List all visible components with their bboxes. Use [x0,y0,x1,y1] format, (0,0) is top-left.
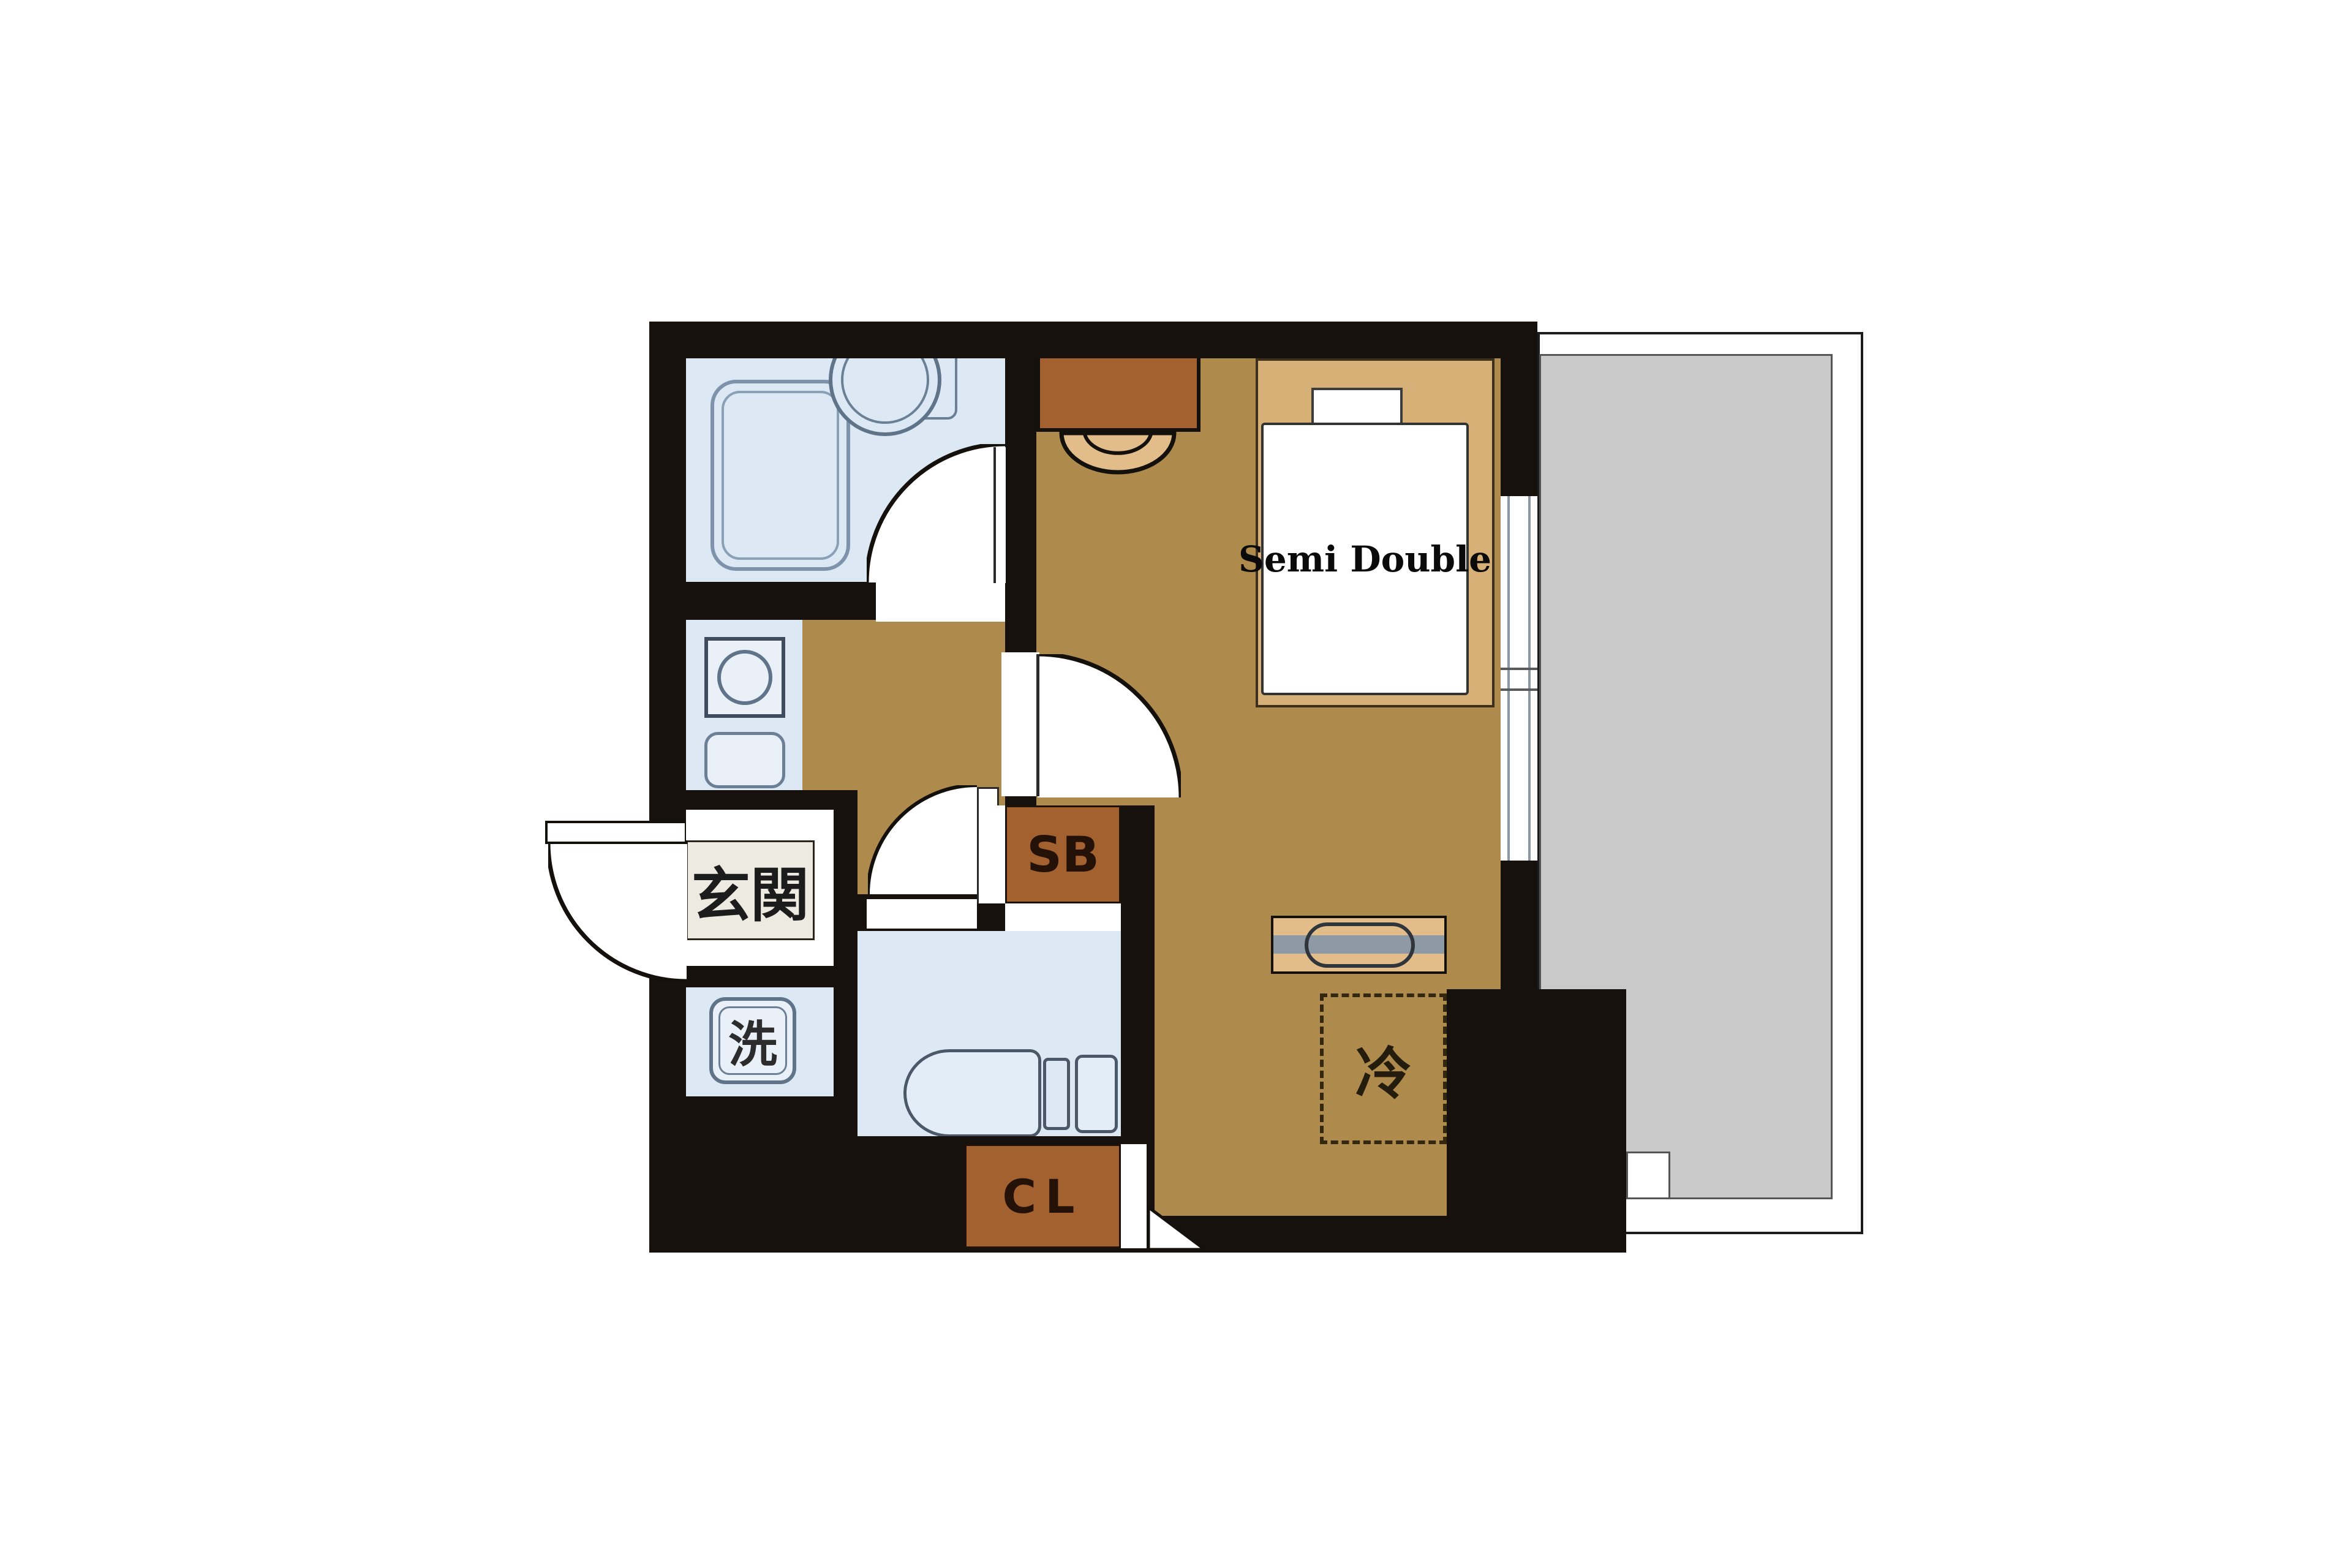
entrance-threshold-bottom [686,940,815,966]
closet: CL [965,1144,1121,1248]
toilet-seat [1043,1058,1070,1130]
closet-door-mark [1147,1205,1208,1252]
wall-entrance-laundry [686,966,834,987]
entrance-door-swing [548,843,687,981]
bed-size-label: Semi Double [1238,538,1491,580]
chair [1057,431,1179,478]
room-door-opening [1001,652,1039,796]
closet-gap-right [1121,1144,1147,1248]
wall-top [649,322,1537,358]
refrigerator-label: 冷 [1355,1028,1411,1110]
floorplan: Semi Double 冷 洗 [0,0,2352,1568]
window-meeting-rail-a [1501,668,1537,670]
window-opening [1501,496,1537,861]
bathroom-door-threshold [876,579,1005,622]
shoe-box-label: SB [1027,826,1099,883]
entrance-threshold-side [815,810,834,966]
hall-floor-upper [802,619,1005,793]
closet-label: CL [1002,1169,1083,1224]
entrance-threshold-top [686,810,815,840]
washing-machine-inner [718,1006,787,1075]
shoe-box-gap-bottom [1005,903,1121,931]
wall-right-upper [1501,322,1537,496]
bathtub [710,380,850,571]
wall-right-lower [1501,861,1537,995]
pipe-space-block [1447,989,1626,1253]
stove-burner-icon [717,650,772,705]
kitchen-sink [704,732,785,788]
toilet-bowl [903,1049,1041,1137]
bathtub-inner-line [722,391,839,560]
window-meeting-rail-b [1501,688,1537,691]
toilet-door-swing [868,785,977,894]
entrance-label-box: 玄関 [686,840,815,940]
window-glass-line-a [1507,496,1510,861]
entrance-label: 玄関 [692,848,809,933]
toilet-door-threshold [867,899,977,929]
black-area-left [649,1096,858,1253]
bathroom-door-leaf [993,447,1006,583]
room-door-leaf [1036,654,1039,796]
counter-sink [1305,922,1415,968]
shoe-box-gap-left [979,805,1005,903]
toilet-tank [1075,1055,1118,1133]
window-glass-line-b [1528,496,1531,861]
room-door-swing [1038,654,1181,797]
refrigerator-space: 冷 [1320,993,1447,1144]
bathroom-door-swing [867,444,1005,582]
bed-mattress: Semi Double [1261,423,1469,695]
shoe-box: SB [1005,805,1121,903]
balcony-step [1626,1151,1670,1199]
washing-machine: 洗 [709,997,796,1084]
entrance-door-leaf [545,821,687,844]
